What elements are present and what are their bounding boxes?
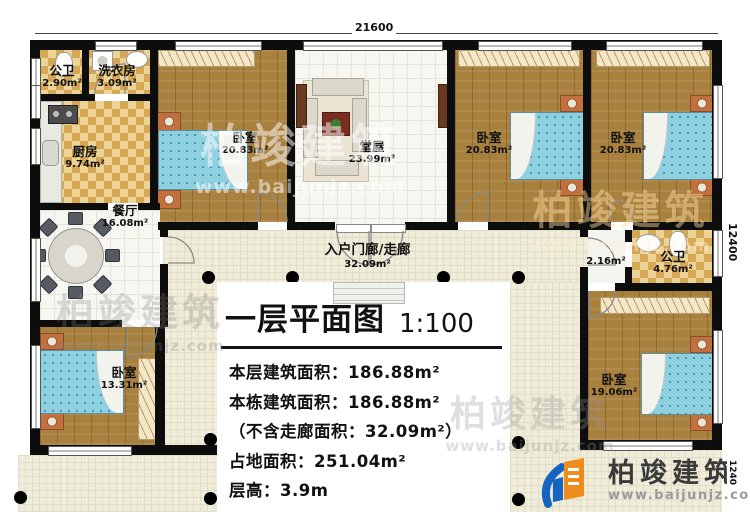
wall-segment <box>488 222 580 230</box>
window <box>48 446 132 456</box>
room-name: 入户门廊/走廊 <box>295 243 440 259</box>
door-leaf <box>336 224 371 233</box>
room-name: 公卫 <box>644 250 702 264</box>
window <box>713 230 723 277</box>
room-area: 20.83m² <box>215 145 275 157</box>
dimension-top: 21600 <box>352 21 396 34</box>
room-name: 餐厅 <box>95 204 155 218</box>
room-area: 2.90m² <box>34 78 90 90</box>
wall-segment <box>155 327 165 455</box>
chair <box>105 249 120 262</box>
room-name: 卧室 <box>459 131 519 145</box>
sofa <box>312 78 364 96</box>
stat-footprint-area: 占地面积：251.04m² <box>229 447 510 477</box>
stove <box>48 105 78 124</box>
wall-segment <box>615 283 722 291</box>
column <box>512 271 525 284</box>
door-leaf <box>371 224 406 233</box>
bed <box>510 112 584 180</box>
room-area: 4.76m² <box>644 264 702 276</box>
legend-panel: 一层平面图 1:100 本层建筑面积：186.88m² 本栋建筑面积：186.8… <box>217 282 510 530</box>
room-label-closet: 2.16m² <box>582 256 630 268</box>
nightstand <box>560 179 584 196</box>
nightstand <box>690 414 714 431</box>
nightstand <box>157 112 181 131</box>
room-label-bedroom-se: 卧室 19.06m² <box>585 373 643 399</box>
room-label-bedroom-ne: 卧室 20.83m² <box>593 131 653 157</box>
coffee-table <box>322 112 350 136</box>
wall-segment <box>40 320 122 327</box>
column <box>204 492 217 505</box>
nightstand <box>690 179 714 196</box>
wardrobe <box>158 50 255 67</box>
bed <box>641 353 714 415</box>
wall-segment <box>580 267 588 450</box>
column <box>204 433 217 446</box>
wall-segment <box>158 222 258 230</box>
window <box>31 85 41 119</box>
room-label-bath2: 公卫 4.76m² <box>644 250 702 276</box>
room-label-laundry: 洗衣房 3.09m² <box>86 64 148 90</box>
room-name: 卧室 <box>215 131 275 145</box>
bed <box>643 112 714 180</box>
wardrobe <box>600 297 710 314</box>
column <box>202 271 215 284</box>
logo-url: www.baijunjz.com <box>608 488 750 503</box>
room-label-bath1: 公卫 2.90m² <box>34 64 90 90</box>
plan-scale: 1:100 <box>399 309 474 339</box>
wall-segment <box>40 94 95 101</box>
chair <box>68 286 83 299</box>
room-area: 19.06m² <box>585 387 643 399</box>
logo-icon <box>538 450 600 512</box>
dimension-right: 12400 <box>726 220 739 264</box>
room-name: 卧室 <box>94 366 154 380</box>
column <box>14 491 27 504</box>
room-area: 3.09m² <box>86 78 148 90</box>
room-label-corridor: 入户门廊/走廊 32.09m² <box>295 243 440 270</box>
nightstand <box>40 333 64 350</box>
wall-segment <box>625 230 632 242</box>
window <box>31 128 41 165</box>
floor-plan: 公卫 2.90m² 洗衣房 3.09m² 厨房 9.74m² 餐厅 16.08m… <box>0 0 750 530</box>
wall-segment <box>588 222 611 230</box>
wall-segment <box>580 283 588 291</box>
window <box>303 41 443 51</box>
wall-segment <box>447 50 455 230</box>
room-label-bedroom-n2: 卧室 20.83m² <box>459 131 519 157</box>
dimension-porch: 1240 <box>727 458 737 487</box>
wall-segment <box>633 222 722 230</box>
wall-segment <box>150 50 158 210</box>
porch-left-apron <box>18 455 218 512</box>
room-label-hall: 堂屋 23.99m² <box>340 140 404 166</box>
room-name: 公卫 <box>34 64 90 78</box>
room-label-dining: 餐厅 16.08m² <box>95 204 155 230</box>
wardrobe <box>596 50 710 67</box>
room-name: 卧室 <box>593 131 653 145</box>
stat-floor-area: 本层建筑面积：186.88m² <box>229 358 510 388</box>
column <box>512 493 525 506</box>
wall-segment <box>287 50 295 230</box>
company-logo: 柏竣建筑 www.baijunjz.com <box>538 450 750 512</box>
window <box>95 41 137 51</box>
nightstand <box>690 336 714 353</box>
room-name: 厨房 <box>55 145 115 159</box>
nightstand <box>157 190 181 209</box>
room-area: 23.99m² <box>340 154 404 166</box>
stat-corridor-note: （不含走廊面积：32.09m²） <box>229 417 510 447</box>
window <box>175 41 262 51</box>
window <box>713 330 723 424</box>
room-label-kitchen: 厨房 9.74m² <box>55 145 115 171</box>
window <box>31 345 41 429</box>
room-label-bedroom-sw: 卧室 13.31m² <box>94 366 154 392</box>
bed-blanket <box>642 354 666 414</box>
wall-segment <box>160 264 168 327</box>
room-area: 20.83m² <box>593 145 653 157</box>
room-area: 13.31m² <box>94 380 154 392</box>
stat-building-area: 本栋建筑面积：186.88m² <box>229 388 510 418</box>
wardrobe <box>458 50 580 67</box>
window <box>606 41 703 51</box>
window <box>713 85 723 179</box>
window <box>478 41 572 51</box>
room-area: 16.08m² <box>95 218 155 230</box>
entrance-steps <box>333 282 405 304</box>
nightstand <box>560 95 584 112</box>
column <box>512 436 525 449</box>
wall-segment <box>583 50 591 230</box>
room-name: 卧室 <box>585 373 643 387</box>
tv-cabinet <box>296 84 307 128</box>
room-name: 洗衣房 <box>86 64 148 78</box>
room-area: 9.74m² <box>55 159 115 171</box>
room-area: 2.16m² <box>582 256 630 268</box>
room-label-bedroom-nw: 卧室 20.83m² <box>215 131 275 157</box>
room-name: 堂屋 <box>340 140 404 154</box>
window <box>31 238 41 302</box>
room-area: 32.09m² <box>295 259 440 271</box>
chair <box>68 212 83 225</box>
nightstand <box>40 413 64 430</box>
plan-stats: 本层建筑面积：186.88m² 本栋建筑面积：186.88m² （不含走廊面积：… <box>217 353 510 506</box>
dining-table <box>48 228 104 284</box>
nightstand <box>690 95 714 112</box>
stat-floor-height: 层高：3.9m <box>229 476 510 506</box>
room-area: 20.83m² <box>459 145 519 157</box>
